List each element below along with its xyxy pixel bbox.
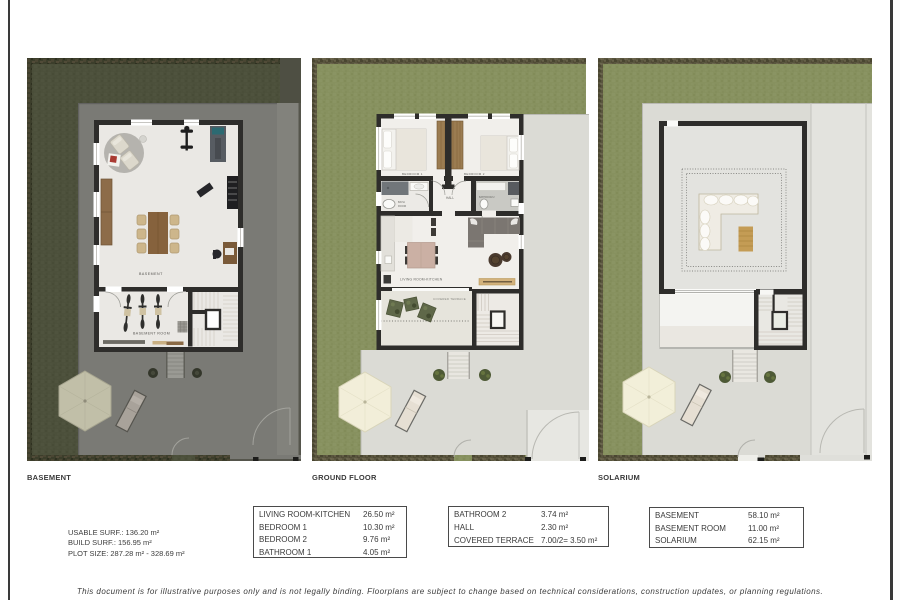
svg-text:BEDROOM 2: BEDROOM 2 — [464, 172, 485, 176]
svg-text:BASEMENT: BASEMENT — [139, 272, 163, 276]
svg-text:LIVING ROOM-KITCHEN: LIVING ROOM-KITCHEN — [400, 278, 443, 282]
svg-text:ROOM: ROOM — [398, 204, 406, 208]
svg-text:HALL: HALL — [446, 196, 454, 200]
svg-text:BEDROOM 1: BEDROOM 1 — [402, 172, 423, 176]
svg-text:COVERED TERRACE: COVERED TERRACE — [433, 297, 466, 301]
svg-text:BATHROOM 2: BATHROOM 2 — [479, 196, 495, 199]
svg-text:BATH: BATH — [398, 200, 405, 204]
svg-text:BASEMENT ROOM: BASEMENT ROOM — [133, 332, 170, 336]
